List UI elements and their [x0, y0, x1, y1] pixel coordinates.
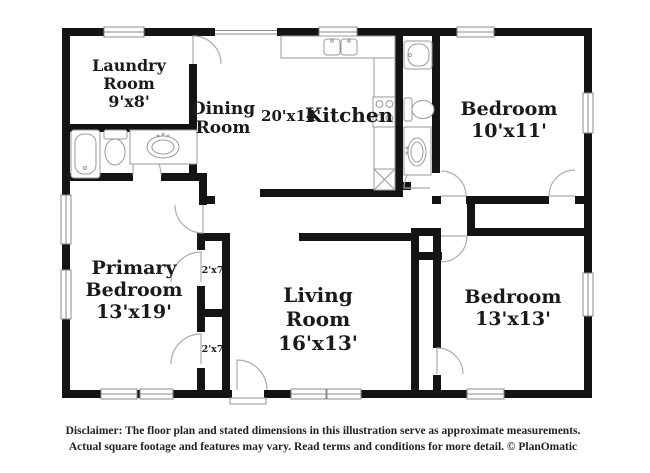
window-living-2 [327, 389, 361, 399]
bedroom-bottom-right-name: Bedroom [465, 286, 562, 308]
bathroom1-fixtures [71, 130, 197, 178]
closet-bottom-dims: 2'x7' [202, 344, 227, 355]
living-room-name-line2: Room [286, 307, 350, 331]
bedroom-bottom-right-door [441, 236, 467, 262]
room-labels: Laundry Room 9'x8' Dining Room 20'x14' K… [86, 56, 562, 355]
bedroom-top-right-closet-door [549, 170, 575, 196]
toilet-2 [404, 98, 434, 121]
primary-bedroom-name-line2: Bedroom [86, 279, 183, 301]
bedroom-top-right-door [441, 171, 466, 196]
floor-plan-page: Laundry Room 9'x8' Dining Room 20'x14' K… [0, 0, 650, 473]
window-primary-2 [140, 389, 173, 399]
window-bedroom-right-2 [583, 273, 593, 316]
primary-bedroom-dims: 13'x19' [96, 301, 172, 323]
footer: Disclaimer: The floor plan and stated di… [66, 425, 581, 453]
laundry-room-name-line2: Room [103, 74, 155, 93]
bedroom-top-right-dims: 10'x11' [471, 120, 547, 142]
toilet [104, 130, 127, 165]
window-bedroom-top [457, 27, 494, 37]
window-bedroom-bottom [467, 389, 504, 399]
living-room-name-line1: Living [283, 283, 352, 307]
bedroom-bottom-right-dims: 13'x13' [475, 308, 551, 330]
bathtub-2 [404, 41, 432, 69]
label-kitchen: 20'x14' Kitchen [261, 103, 394, 127]
bedroom-bottom-right-side-door [437, 348, 463, 374]
label-living-room: Living Room 16'x13' [278, 283, 358, 355]
primary-bedroom-name-line1: Primary [92, 257, 178, 279]
label-primary-bedroom: Primary Bedroom 13'x19' [86, 257, 183, 323]
sink-vanity-2 [404, 127, 431, 175]
bathroom2-fixtures [404, 41, 434, 175]
floor-plan-drawing: Laundry Room 9'x8' Dining Room 20'x14' K… [0, 0, 650, 473]
living-room-dims: 16'x13' [278, 331, 358, 355]
window-bedroom-right-1 [583, 93, 593, 133]
primary-bedroom-door [175, 205, 203, 233]
laundry-room-dims: 9'x8' [108, 92, 150, 111]
label-dining-room: Dining Room [191, 99, 255, 138]
bathtub [71, 130, 100, 178]
bedroom-top-right-name: Bedroom [461, 98, 558, 120]
corner-cabinet [374, 169, 395, 190]
laundry-door [193, 36, 221, 64]
front-door [230, 360, 267, 404]
window-primary-1 [101, 389, 137, 399]
label-laundry-room: Laundry Room 9'x8' [92, 56, 167, 111]
label-bedroom-top-right: Bedroom 10'x11' [461, 98, 558, 142]
closet-top-dims: 2'x7' [202, 265, 227, 276]
window-primary-left-2 [61, 270, 71, 319]
disclaimer-line1: Disclaimer: The floor plan and stated di… [66, 425, 581, 437]
window-living-1 [291, 389, 326, 399]
dining-room-name-line1: Dining [191, 99, 255, 119]
window-primary-left-1 [61, 195, 71, 244]
kitchen-name: Kitchen [305, 103, 394, 127]
laundry-room-name-line1: Laundry [92, 56, 167, 75]
label-bedroom-bottom-right: Bedroom 13'x13' [465, 286, 562, 330]
closet-bottom-door [171, 334, 201, 364]
sink-vanity [130, 130, 197, 164]
disclaimer-line2: Actual square footage and features may v… [69, 441, 577, 453]
window-laundry [104, 27, 144, 37]
dining-room-name-line2: Room [196, 118, 251, 138]
opening-top [215, 28, 277, 36]
